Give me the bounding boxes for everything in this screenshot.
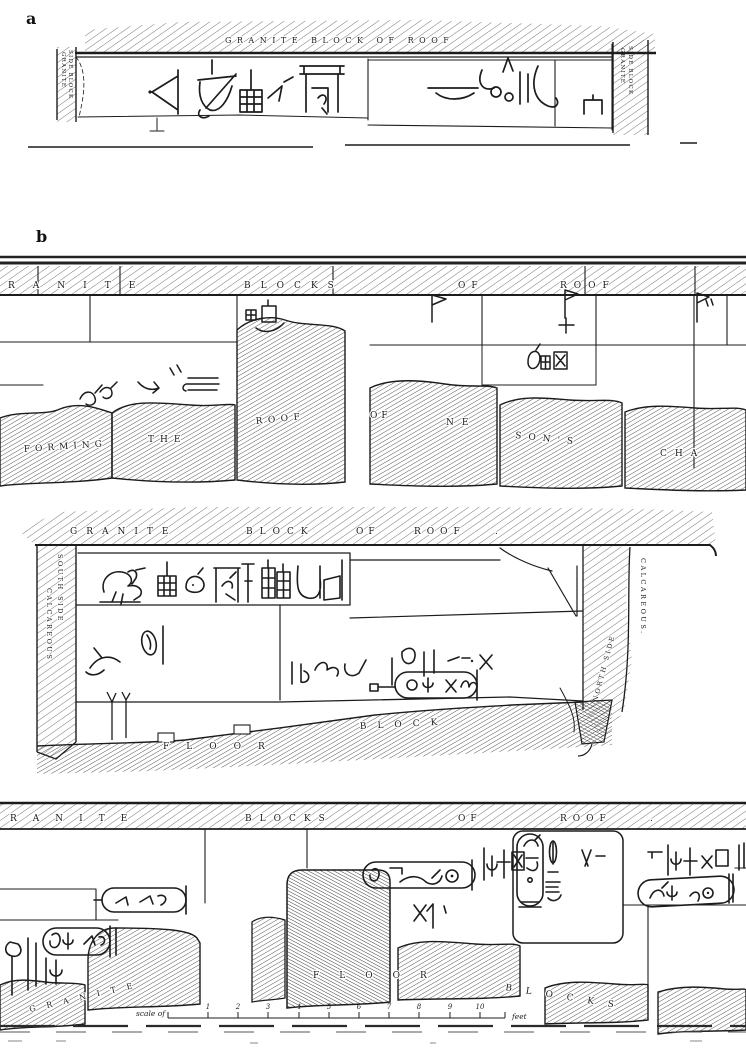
panel-c-roof-word-5: . [495,527,498,537]
sixteen-squiggle-glyph [292,660,366,684]
grid-sign-glyph [240,70,262,112]
feather-stack-glyphs [546,841,605,901]
bird-sign-glyph [86,648,120,675]
triangle-sign-glyph [152,70,178,114]
mound-central-dark [287,870,390,1008]
flag-cross-glyph [559,290,578,333]
right-edge-marks [739,843,744,870]
triple-stroke-glyph [183,378,219,391]
curl-glyph [520,66,558,107]
glyph-row-right [648,845,728,875]
scale-number-8: 8 [417,1003,422,1011]
scale-prefix-label: scale of [136,1009,166,1018]
panel-c-floor-band [37,700,612,774]
seated-figure-glyph [198,60,236,118]
scale-number-10: 10 [476,1003,485,1011]
scale-number-4: 4 [296,1003,301,1011]
panel-c-block-lines [76,548,583,732]
u-box-glyph [297,560,342,600]
floor-notch-1 [158,733,174,742]
panel-b-label: b [36,227,47,246]
scale-unit-label: feet [511,1012,528,1021]
panel-b-wall-word-4: OF [370,411,392,421]
panel-c-south-side-label: SOUTH SIDE [56,554,64,623]
scale-bar-ticks [208,1012,480,1018]
panel-b-wall-word-5: NE [446,418,476,428]
scale-bar-line [168,1012,505,1018]
panel-c-roof-band [18,507,716,545]
panel-a-hieroglyphs [148,58,602,118]
scale-number-9: 9 [448,1003,453,1011]
panel-d-roof-word-1: RANITE [10,814,143,824]
panel-b: b RANITE BLOCKS OF ROOF [0,227,746,491]
grid-glyph [158,562,176,596]
panel-a: a GRANITE BLOCK OF ROOF GRANITE SIDE BLO… [26,9,697,147]
pole-glyph [242,564,254,602]
panel-c-glyph-row [100,560,342,604]
box-glyph [584,95,602,114]
panel-c-roof-word-3: OF [356,527,380,537]
panel-c-mid-glyphs [86,626,492,700]
panel-a-roof-label: GRANITE BLOCK OF ROOF [225,36,454,45]
panel-d-roof-word-2: BLOCKS [245,814,333,824]
panel-b-wall-word-2: THE [148,435,186,445]
panel-b-wall-word-7: CHA [660,449,705,459]
panel-d-mounds [0,870,746,1034]
bird-pair-glyph [80,382,117,405]
chevron-glyph [268,77,293,101]
plant-stem-glyphs [107,692,130,740]
panel-c-roof-word-1: GRANITE [70,527,177,537]
double-grid-glyph [262,560,290,598]
naos-glyph [300,66,344,114]
mound-roof [237,318,345,484]
panel-d-roof-word-5: . [650,814,653,824]
panel-a-label: a [26,9,36,28]
lintel-glyph [428,88,478,99]
scale-number-7: 7 [387,1003,392,1011]
panel-c-calcareous-right-label: CALCAREOUS. [639,558,647,636]
cartouche-vertical-signs [519,835,541,907]
panel-b-roof-word-1: RANITE [8,281,153,291]
mound-small-mid [252,917,285,1002]
panel-a-left-side-label-2: SIDE BLOCK [67,50,73,99]
plate-drawing: a GRANITE BLOCK OF ROOF GRANITE SIDE BLO… [0,0,746,1053]
panel-c-roof-word-4: ROOF [414,527,466,537]
flag-glyph-2 [697,293,713,322]
panel-b-roof-word-2: BLOCKS [244,281,344,291]
panel-a-left-side-label-1: GRANITE [60,52,66,88]
scale-number-1: 1 [206,1003,210,1011]
cartouche-right [637,876,734,908]
scale-number-5: 5 [327,1003,332,1011]
leaf-grid-box-glyph [528,344,567,369]
panel-c-calcareous-left-label: CALCAREOUS [45,588,53,661]
naos-bird-glyph [214,568,240,602]
panel-d-roof-word-4: ROOF [560,814,612,824]
mound-of-ne [370,381,497,487]
panel-a-right-side-label-1: GRANITE [619,48,625,84]
arrow-glyph [138,365,181,393]
x-arrow-marks [414,904,446,928]
panel-a-right-side-label-2: SIDE BLOCK [627,46,633,95]
duck-glyph [100,568,145,604]
scale-number-3: 3 [266,1003,271,1011]
glyphs-after-cartouche [484,848,524,880]
flag-glyph-1 [432,295,446,322]
panel-a-ground-dashes [28,143,697,147]
panel-b-roof-word-3: OF [458,281,484,291]
panel-b-roof-word-4: ROOF [560,281,616,291]
panel-a-block-outline [76,44,612,131]
panel-c-floor-word-1: FLOOR [163,742,282,752]
ground-speckles [8,1041,702,1043]
panel-b-mounds [0,318,746,491]
panel-d-roof-word-3: OF [458,814,482,824]
panel-d-floor-word-2: FLOOR [313,971,447,981]
y-sign-glyph [480,58,513,89]
cartouche-middle-signs [423,678,477,692]
scale-number-6: 6 [357,1003,362,1011]
panel-c: GRANITE BLOCK OF ROOF . SOUTH SIDE CALCA… [18,507,716,774]
panel-d: RANITE BLOCKS OF ROOF . [0,803,746,1043]
masonry-diagram-svg: a GRANITE BLOCK OF ROOF GRANITE SIDE BLO… [0,0,746,1053]
panel-c-roof-word-2: BLOCK [246,527,315,537]
rounded-block-right [513,831,623,943]
floor-notch-2 [234,725,250,734]
scale-number-2: 2 [235,1003,241,1011]
leaf-glyph [186,568,204,592]
